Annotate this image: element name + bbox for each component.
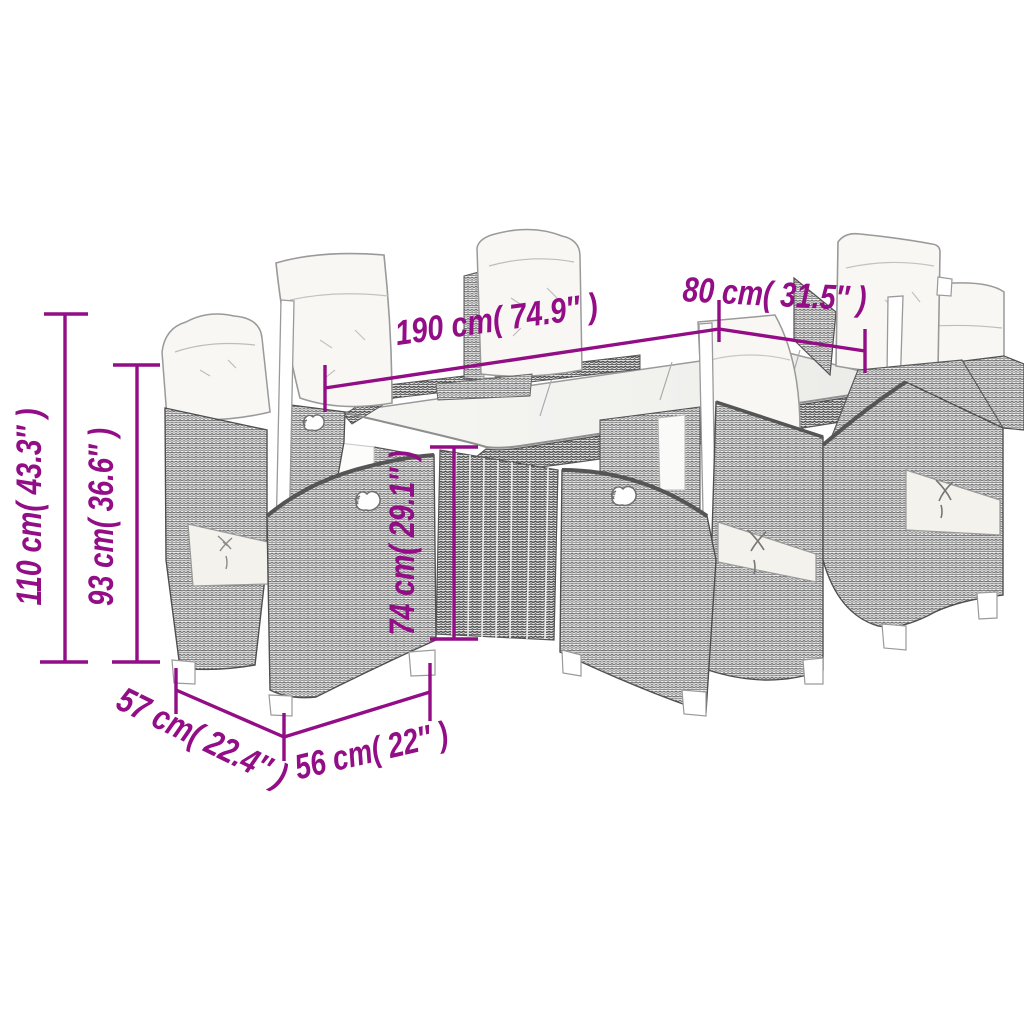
svg-text:74 cm( 29.1″ ): 74 cm( 29.1″ ) [383,451,422,636]
svg-text:93 cm( 36.6″ ): 93 cm( 36.6″ ) [82,428,121,606]
svg-text:110 cm( 43.3″ ): 110 cm( 43.3″ ) [10,409,49,606]
